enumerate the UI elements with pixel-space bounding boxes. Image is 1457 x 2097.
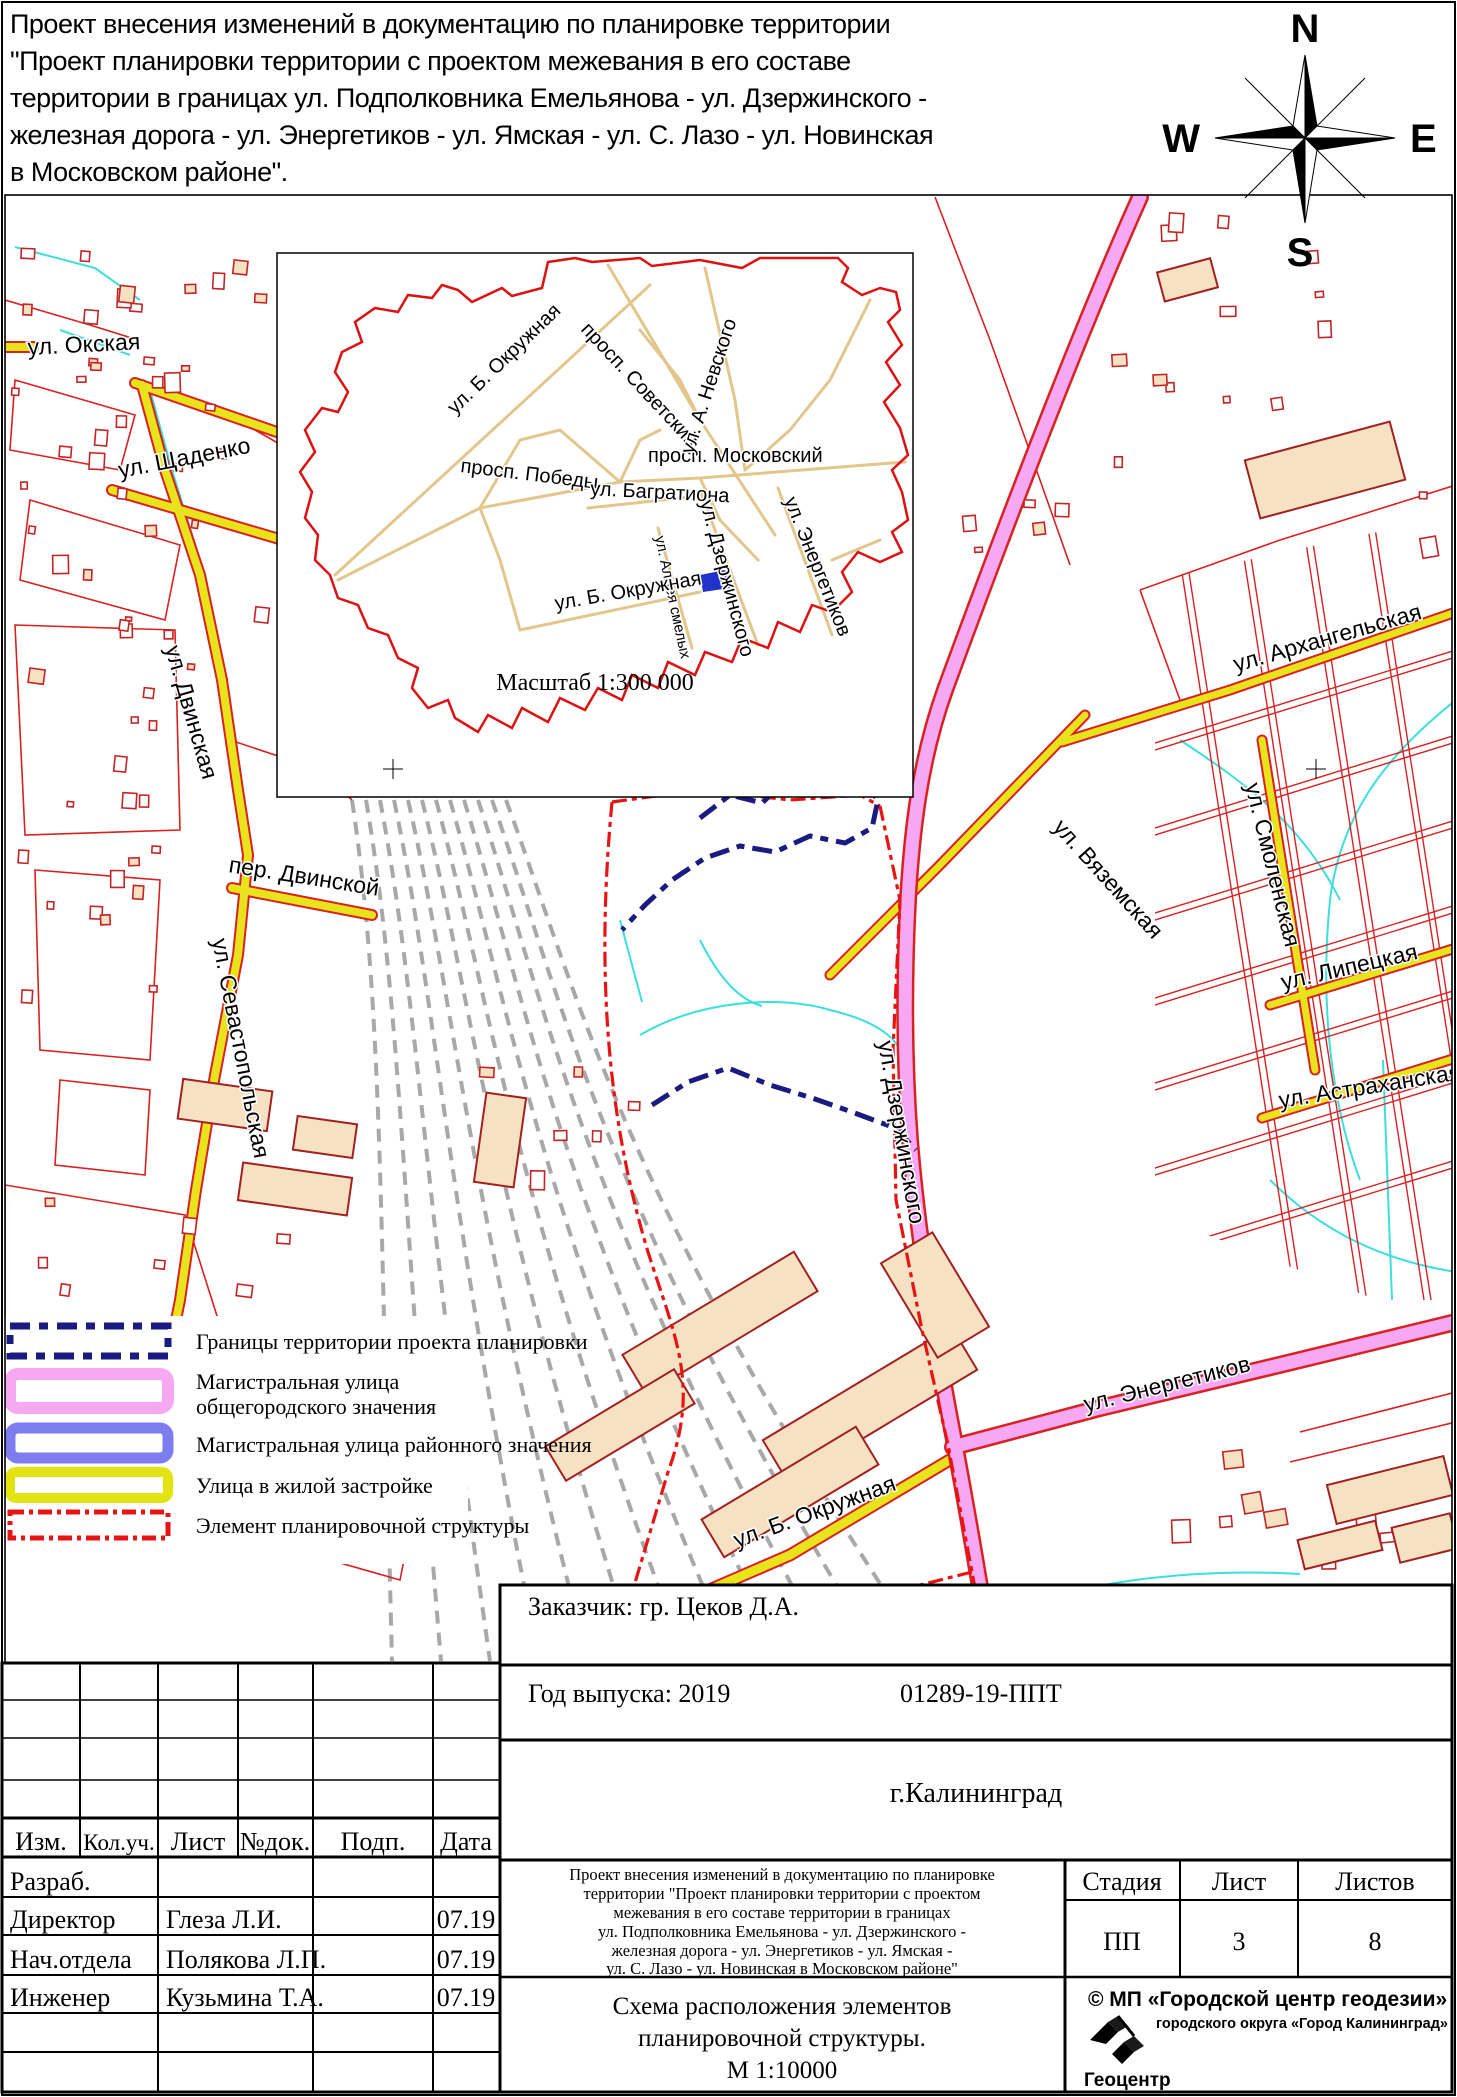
credit-line-1: © МП «Городской центр геодезии»: [1088, 1988, 1447, 2011]
legend-swatch-project-boundary: [10, 1326, 168, 1356]
legend-swatch-magistral-district: [10, 1428, 168, 1458]
legend-label: общегородского значения: [196, 1394, 436, 1419]
legend-label: Элемент планировочной структуры: [196, 1513, 529, 1538]
legend-label: Магистральная улица: [196, 1369, 399, 1394]
stamp-desc-line: территории "Проект планировки территории…: [584, 1884, 981, 1903]
stamp-desc-line: железная дорога - ул. Энергетиков - ул. …: [611, 1941, 953, 1960]
col-list: Лист: [171, 1827, 225, 1856]
sig-date: 07.19: [437, 1905, 496, 1934]
inset-map: ул. Б. Окружная просп. Советский просп. …: [277, 253, 913, 797]
stamp-description: Проект внесения изменений в документацию…: [569, 1865, 995, 1978]
sheet-name-line: планировочной структуры.: [638, 2025, 926, 2052]
sig-date: 07.19: [437, 1945, 496, 1974]
sig-role: Разраб.: [10, 1867, 91, 1896]
compass-east-label: E: [1410, 117, 1437, 161]
sheet-name-line: Схема расположения элементов: [613, 1993, 952, 2020]
stamp-desc-line: межевания в его составе территории в гра…: [613, 1903, 951, 1922]
col-ndok: №док.: [240, 1827, 310, 1856]
compass-west-label: W: [1162, 117, 1200, 161]
map-sheet-svg: ул. Окская ул. Щаденко ул. Двинская пер.…: [0, 0, 1457, 2097]
customer-field: Заказчик: гр. Цеков Д.А.: [528, 1592, 799, 1621]
stamp-desc-line: ул. С. Лазо - ул. Новинская в Московском…: [606, 1959, 958, 1978]
city-field: г.Калининград: [890, 1778, 1062, 1809]
sig-role: Инженер: [10, 1983, 110, 2012]
sheets-total-header: Листов: [1335, 1867, 1414, 1896]
legend-label: Магистральная улица районного значения: [196, 1432, 592, 1457]
sig-name: Кузьмина Т.А.: [166, 1983, 324, 2012]
compass-north-label: N: [1291, 7, 1320, 51]
main-map: ул. Окская ул. Щаденко ул. Двинская пер.…: [3, 195, 1457, 1663]
sig-role: Директор: [10, 1905, 116, 1934]
col-podp: Подп.: [341, 1827, 406, 1856]
legend: Границы территории проекта планировки Ма…: [3, 1316, 592, 1564]
sig-date: 07.19: [437, 1983, 496, 2012]
document-page: Проект внесения изменений в документацию…: [0, 0, 1457, 2097]
sheets-total-value: 8: [1369, 1927, 1382, 1956]
year-field: Год выпуска: 2019: [528, 1679, 730, 1708]
sig-role: Нач.отдела: [10, 1945, 132, 1974]
sig-name: Полякова Л.П.: [166, 1945, 326, 1974]
inset-label-moskovskiy: просп. Московский: [648, 445, 823, 467]
legend-swatch-magistral-city: [10, 1374, 168, 1408]
geocentr-logo-text: Геоцентр: [1084, 2070, 1171, 2091]
col-koluch: Кол.уч.: [83, 1830, 154, 1855]
col-data: Дата: [440, 1827, 492, 1856]
stage-value: ПП: [1103, 1927, 1141, 1956]
legend-swatch-element-boundary: [10, 1512, 168, 1538]
legend-label: Границы территории проекта планировки: [196, 1329, 588, 1354]
sheet-value: 3: [1233, 1927, 1246, 1956]
sheet-scale: М 1:10000: [727, 2057, 837, 2084]
compass-south-label: S: [1287, 231, 1314, 275]
legend-swatch-residential-street: [10, 1472, 168, 1498]
stamp-desc-line: Проект внесения изменений в документацию…: [569, 1865, 995, 1884]
sheet-header: Лист: [1212, 1867, 1266, 1896]
legend-label: Улица в жилой застройке: [196, 1473, 433, 1498]
col-izm: Изм.: [15, 1827, 67, 1856]
inset-scale-caption: Масштаб 1:300 000: [496, 670, 693, 696]
stage-header: Стадия: [1082, 1867, 1161, 1896]
credit-line-2: городского округа «Город Калининград»: [1156, 2016, 1448, 2032]
sig-name: Глеза Л.И.: [166, 1905, 282, 1934]
stamp-desc-line: ул. Подполковника Емельянова - ул. Дзерж…: [598, 1922, 966, 1941]
project-code: 01289-19-ППТ: [900, 1679, 1062, 1708]
